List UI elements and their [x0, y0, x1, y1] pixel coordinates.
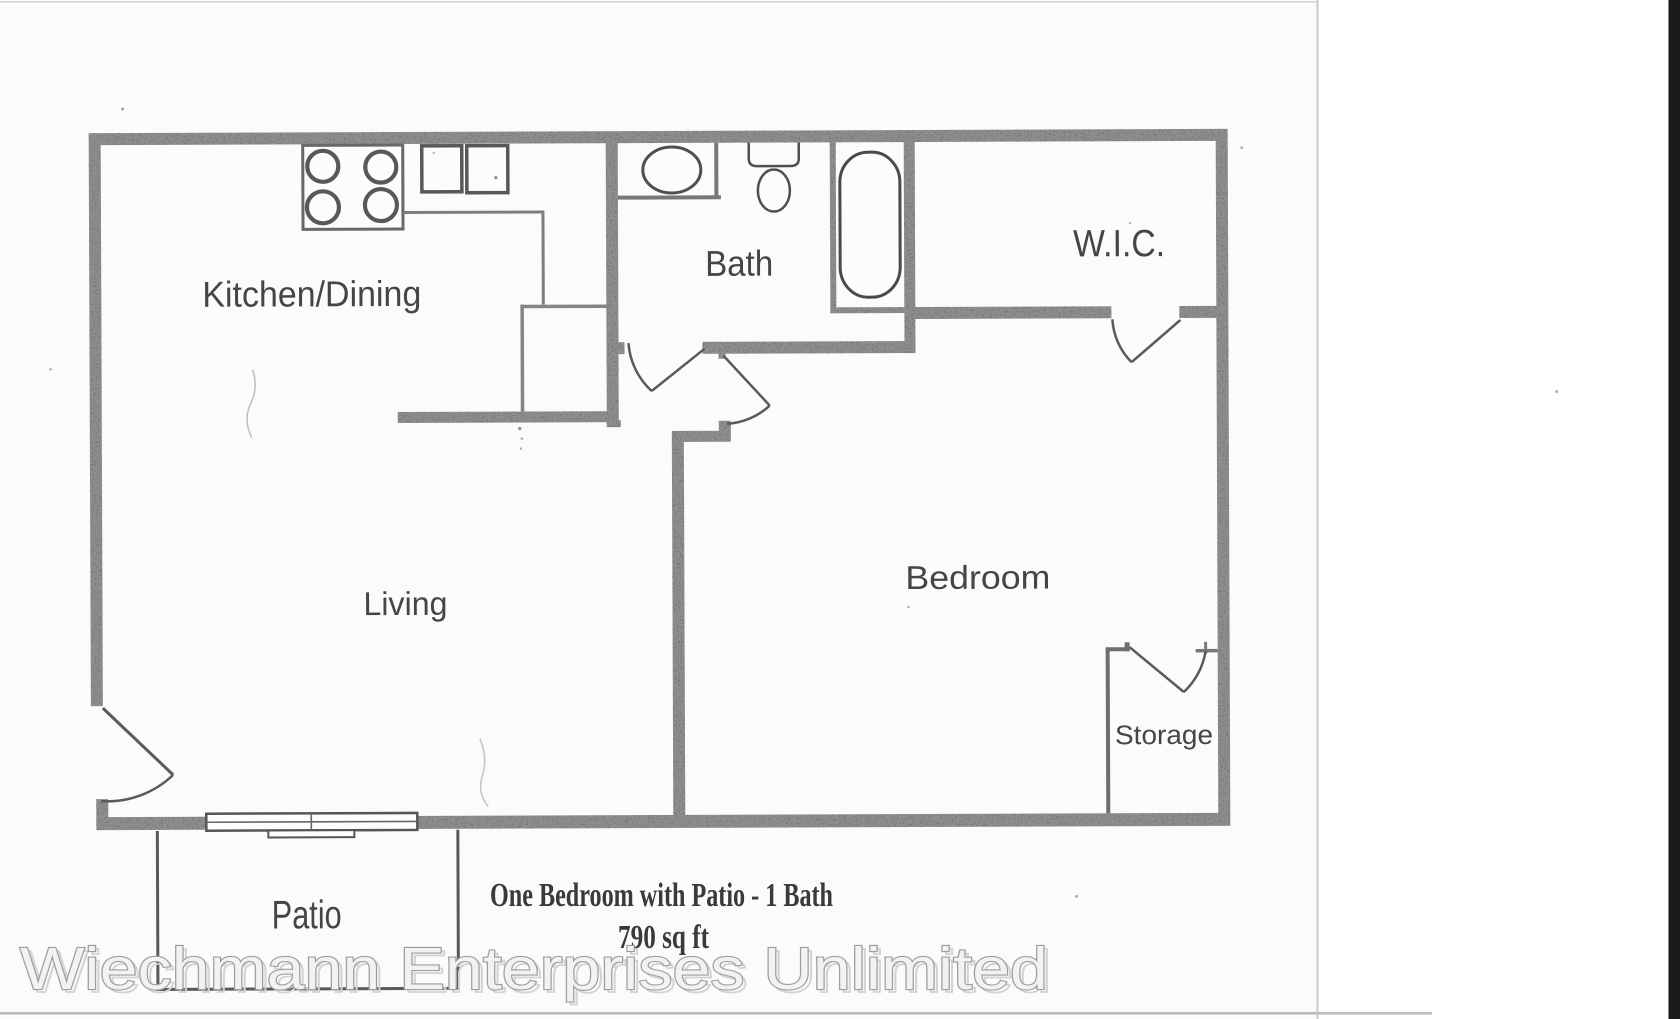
svg-text:Kitchen/Dining: Kitchen/Dining: [202, 273, 421, 315]
svg-text:W.I.C.: W.I.C.: [1073, 223, 1165, 265]
svg-text:Storage: Storage: [1115, 720, 1213, 750]
svg-text:Patio: Patio: [272, 893, 342, 937]
svg-text:Bath: Bath: [705, 243, 773, 284]
svg-text:Wiechmann Enterprises Unlimite: Wiechmann Enterprises Unlimited: [20, 936, 1048, 1002]
svg-text:One Bedroom with Patio - 1 Bat: One Bedroom with Patio - 1 Bath: [490, 877, 833, 914]
svg-text:Bedroom: Bedroom: [905, 559, 1050, 597]
svg-text:Living: Living: [363, 585, 447, 622]
